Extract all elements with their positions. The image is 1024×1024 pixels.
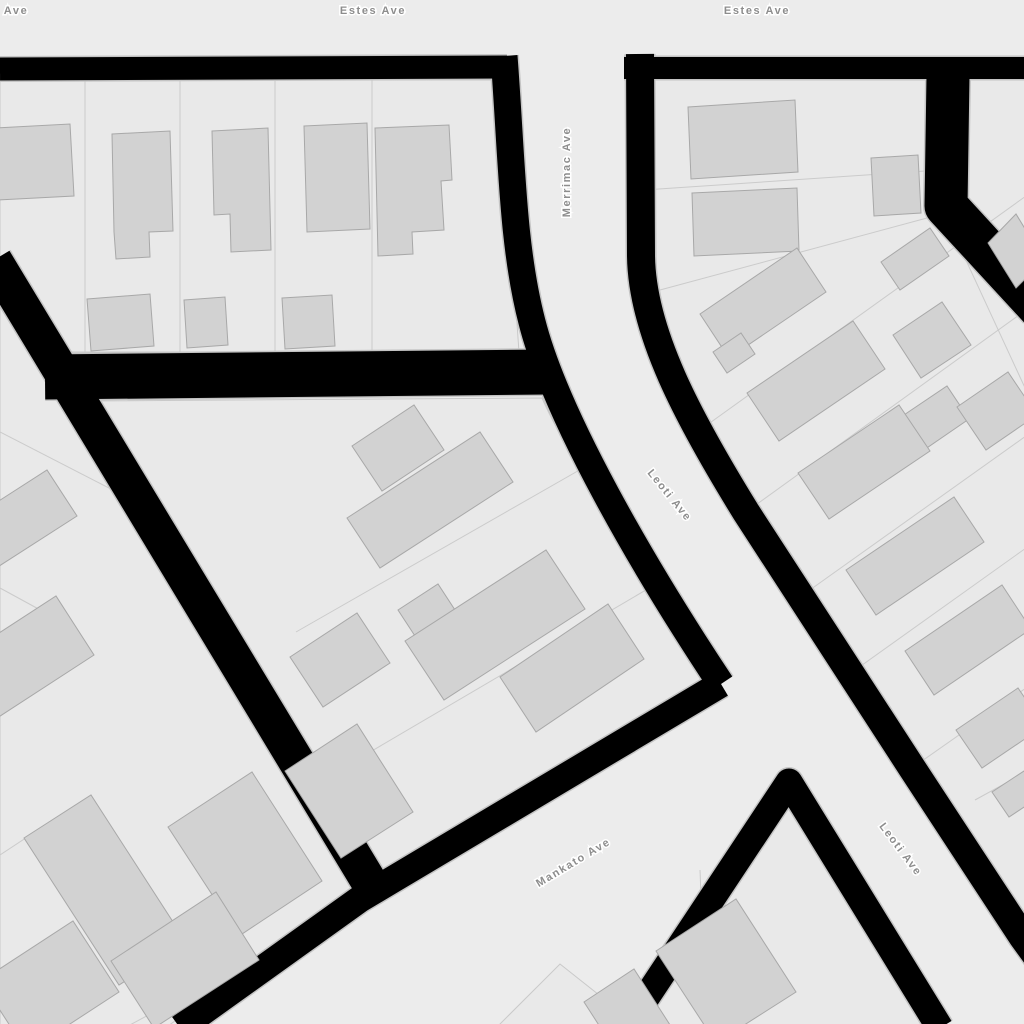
building-footprint	[0, 124, 74, 200]
street-label-estes-ave: Estes Ave	[340, 5, 406, 17]
building-footprint	[184, 297, 228, 348]
road-segment-alley-horizontal	[45, 372, 549, 377]
map-canvas[interactable]: AveEstes AveEstes AveMerrimac AveLeoti A…	[0, 0, 1024, 1024]
street-label-ave: Ave	[4, 5, 29, 17]
road-segment-estes-west	[0, 67, 507, 69]
building-footprint	[87, 294, 154, 351]
building-footprint	[282, 295, 335, 349]
building-footprint	[688, 100, 798, 179]
building-footprint	[871, 155, 921, 216]
street-label-merrimac-ave: Merrimac Ave	[561, 127, 573, 218]
map-viewport[interactable]: AveEstes AveEstes AveMerrimac AveLeoti A…	[0, 0, 1024, 1024]
building-footprint	[304, 123, 370, 232]
street-label-estes-ave: Estes Ave	[724, 5, 790, 17]
building-footprint	[692, 188, 799, 256]
